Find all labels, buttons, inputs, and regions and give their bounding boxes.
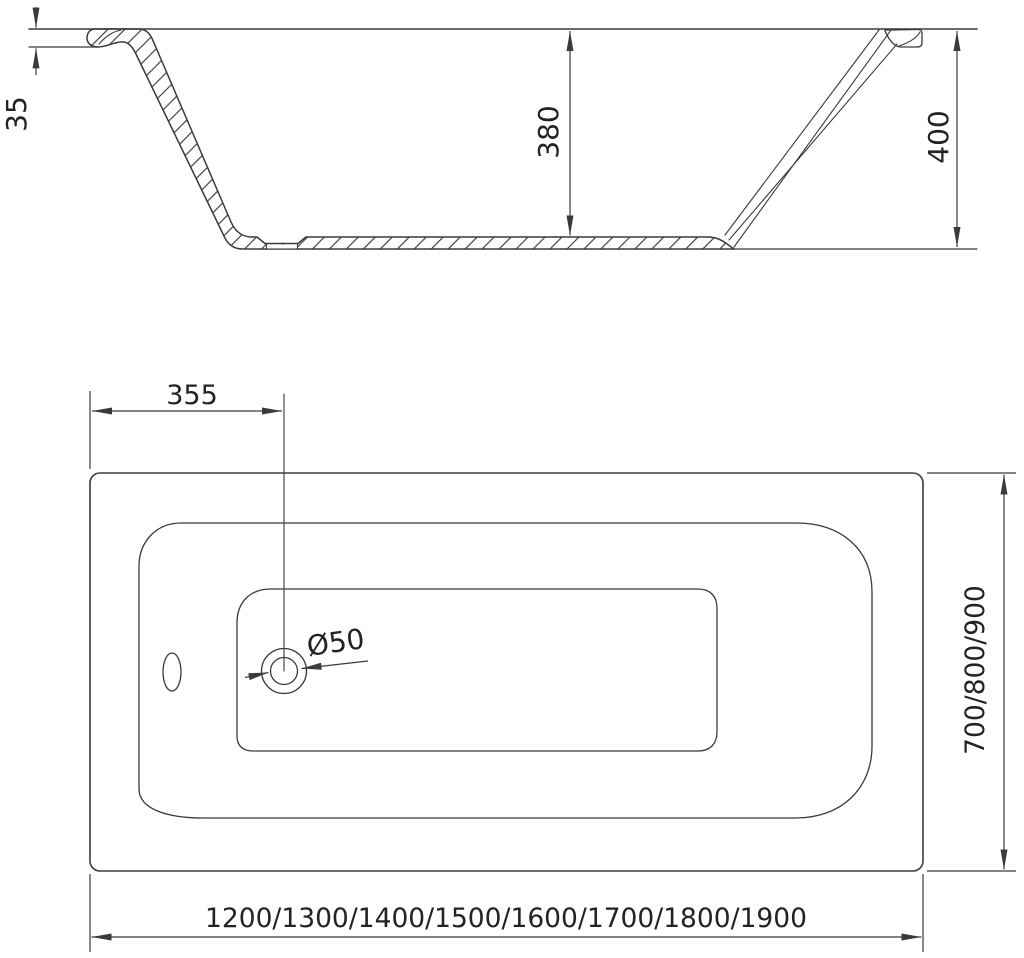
section-right-wall-edge-2 xyxy=(734,30,891,247)
dim-400-label: 400 xyxy=(922,110,955,163)
dim-rim-thickness: 35 xyxy=(0,7,36,132)
dim-drain-offset: 355 xyxy=(90,380,282,469)
dim-length-label: 1200/1300/1400/1500/1600/1700/1800/1900 xyxy=(205,903,807,934)
plan-basin-floor xyxy=(237,589,717,751)
section-right-wall-edge-3 xyxy=(729,44,897,240)
dim-width-label: 700/800/900 xyxy=(960,585,991,755)
dia-50-label: Ø50 xyxy=(305,622,367,663)
dim-380-label: 380 xyxy=(532,105,565,158)
plan-view: 355 Ø50 1200/1300/1400/1500/1600/1700/18… xyxy=(90,380,1016,952)
dim-overall-height: 400 xyxy=(922,31,957,247)
drawing-sheet: 35 380 400 355 xyxy=(0,0,1024,958)
dim-width-options: 700/800/900 xyxy=(927,473,1016,871)
section-view: 35 380 400 xyxy=(0,7,977,249)
section-right-lip-fillet xyxy=(899,32,920,46)
section-cut-wall-floor xyxy=(87,29,734,249)
dia-50-arrow-left xyxy=(245,673,269,678)
plan-outer-rim xyxy=(90,473,923,871)
dim-length-options: 1200/1300/1400/1500/1600/1700/1800/1900 xyxy=(90,874,923,952)
section-right-wall-edge-1 xyxy=(725,30,879,235)
bathtub-technical-drawing: 35 380 400 355 xyxy=(0,0,1024,958)
plan-inner-rim xyxy=(139,523,872,818)
dim-35-label: 35 xyxy=(0,96,33,132)
plan-overflow-hole xyxy=(163,653,181,691)
section-drain-hole-gap xyxy=(267,245,297,249)
dim-inner-depth: 380 xyxy=(532,31,570,236)
dim-355-label: 355 xyxy=(166,380,218,411)
